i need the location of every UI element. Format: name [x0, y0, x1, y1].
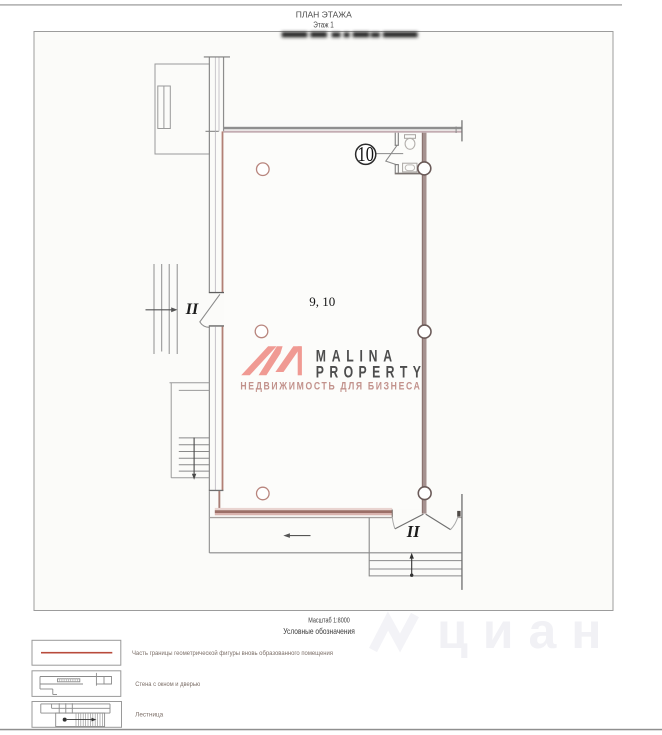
svg-text:II: II: [185, 301, 199, 318]
svg-text:Стена с окном и дверью: Стена с окном и дверью: [135, 681, 200, 688]
svg-text:НЕДВИЖИМОСТЬ ДЛЯ БИЗНЕСА: НЕДВИЖИМОСТЬ ДЛЯ БИЗНЕСА: [240, 381, 420, 393]
svg-text:Часть границы геометрической ф: Часть границы геометрической фигуры внов…: [132, 650, 333, 657]
svg-text:циан: циан: [437, 603, 616, 659]
svg-text:ПЛАН ЭТАЖА: ПЛАН ЭТАЖА: [296, 10, 352, 20]
svg-text:Условные обозначения: Условные обозначения: [283, 627, 355, 636]
svg-text:10: 10: [358, 143, 374, 166]
svg-text:Масштаб 1:8000: Масштаб 1:8000: [308, 615, 350, 624]
svg-text:Этаж 1: Этаж 1: [313, 21, 334, 30]
svg-text:9, 10: 9, 10: [309, 294, 335, 309]
svg-text:Лестница: Лестница: [135, 712, 164, 719]
svg-text:II: II: [406, 522, 420, 541]
